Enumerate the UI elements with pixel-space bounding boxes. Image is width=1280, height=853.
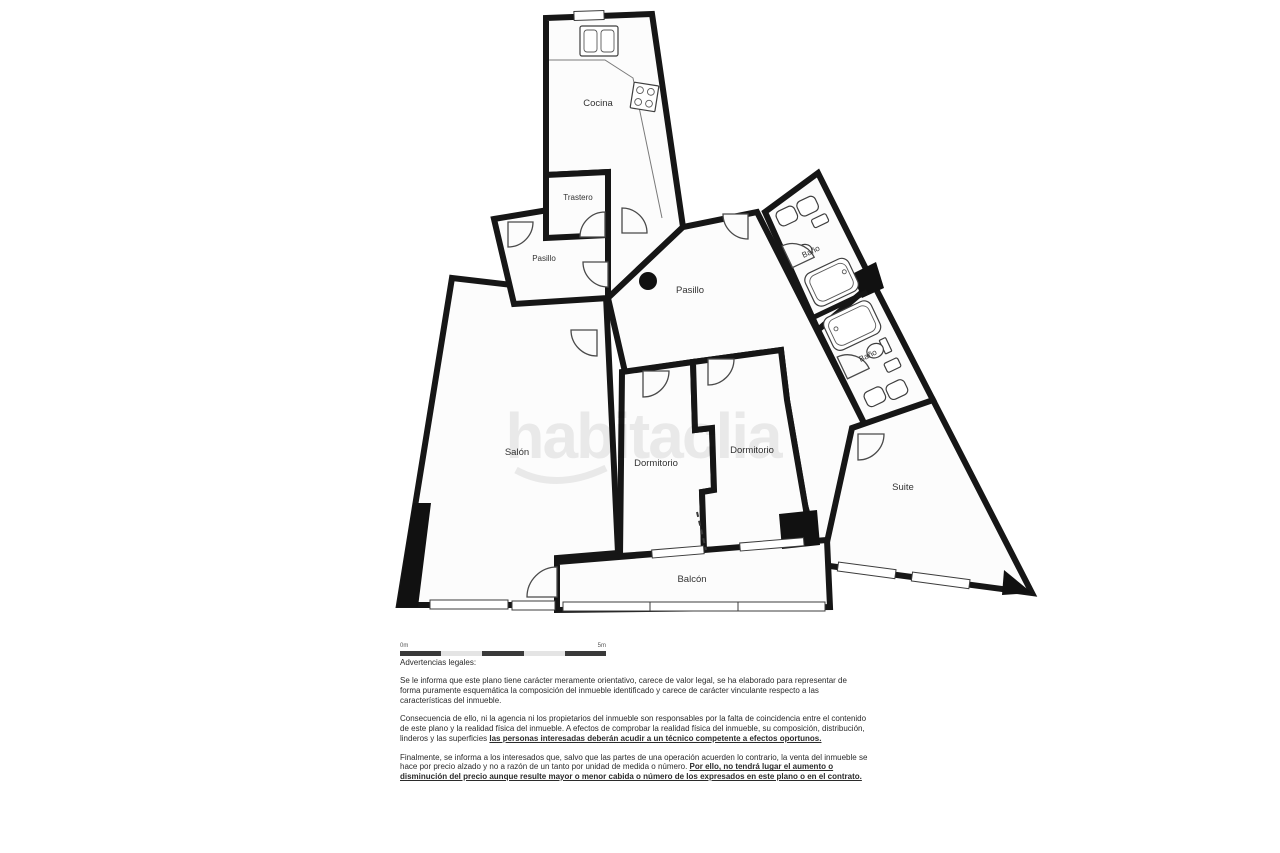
scale-bar: 0m 5m [400,644,606,658]
column-dot [639,272,657,290]
window-balcon-front [563,602,825,611]
scale-segment [482,651,523,656]
scale-segment [441,651,482,656]
legal-paragraph-3: Finalmente, se informa a los interesados… [400,753,868,782]
legal-notes: Advertencias legales: Se le informa que … [400,658,868,791]
legal-paragraph-1: Se le informa que este plano tiene carác… [400,676,868,705]
room-label-suite: Suite [892,482,914,493]
floor-plan-page: Cocina Trastero Pasillo Pasillo Baño Bañ… [0,0,1280,853]
room-label-cocina: Cocina [583,98,613,109]
legal-paragraph-2: Consecuencia de ello, ni la agencia ni l… [400,714,868,743]
room-label-balcon: Balcón [677,574,706,585]
floor-plan-svg: Cocina Trastero Pasillo Pasillo Baño Bañ… [0,0,1280,640]
watermark: habitaclia [505,400,783,481]
scale-start-label: 0m [400,643,408,649]
legal-title: Advertencias legales: [400,658,868,667]
room-label-trastero: Trastero [563,193,593,202]
window-kitchen [574,10,604,20]
legal-paragraph-1-text: Se le informa que este plano tiene carác… [400,676,847,705]
scale-bar-segments [400,651,606,656]
scale-segment [524,651,565,656]
legal-paragraph-2-bold: las personas interesadas deberán acudir … [489,734,821,743]
scale-segment [400,651,441,656]
scale-segment [565,651,606,656]
room-label-pasillo-central: Pasillo [676,285,704,296]
scale-end-label: 5m [598,643,606,649]
window-salon-2 [512,601,555,610]
kitchen-stove [630,82,659,112]
window-salon-1 [430,600,508,609]
room-label-pasillo-small: Pasillo [532,254,556,263]
watermark-text: habitaclia [505,400,783,472]
